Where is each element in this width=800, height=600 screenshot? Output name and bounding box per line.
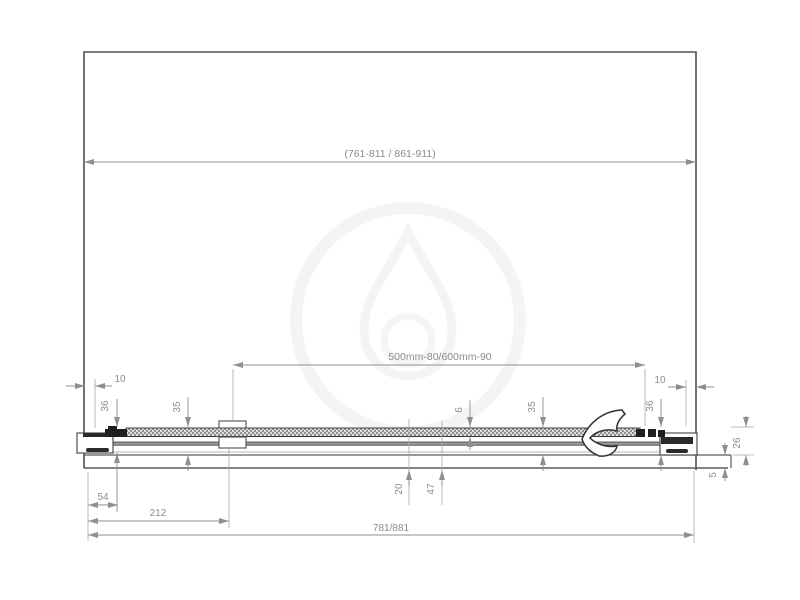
- label-right-profile-height: 36: [645, 400, 656, 412]
- label-threshold-inner: 20: [394, 483, 405, 495]
- label-right-wall-gap: 10: [654, 375, 666, 386]
- label-bottom-clearance: 5: [708, 472, 719, 478]
- dim-profile-width: [88, 472, 118, 541]
- label-glass-width: 500mm-80/600mm-90: [388, 351, 491, 363]
- label-opening-width: (761-811 / 861-911): [344, 148, 435, 160]
- water-drop-logo-watermark: [296, 208, 520, 432]
- label-left-wall-gap: 10: [114, 374, 126, 385]
- label-glass-thickness: 6: [454, 407, 465, 413]
- right-glass-clamp: [636, 429, 645, 437]
- drawing-canvas: (761-811 / 861-911) 500mm-80/600mm-90 10…: [0, 0, 800, 600]
- label-door-width: 781/881: [373, 523, 410, 534]
- dim-right-wall-gap: [668, 380, 714, 426]
- label-profile-width: 54: [97, 492, 109, 503]
- label-right-rail-height: 35: [527, 401, 538, 413]
- label-bracket-offset: 212: [150, 508, 167, 519]
- label-left-rail-height: 35: [172, 401, 183, 413]
- technical-drawing: (761-811 / 861-911) 500mm-80/600mm-90 10…: [0, 0, 800, 600]
- label-threshold-outer: 47: [426, 483, 437, 495]
- label-left-profile-height: 36: [100, 400, 111, 412]
- bottom-section-view: [77, 410, 731, 468]
- left-glass-clamp: [105, 429, 127, 437]
- glass-strip: [126, 428, 640, 437]
- label-section-height: 26: [732, 437, 743, 449]
- dim-glass-width: [233, 365, 645, 426]
